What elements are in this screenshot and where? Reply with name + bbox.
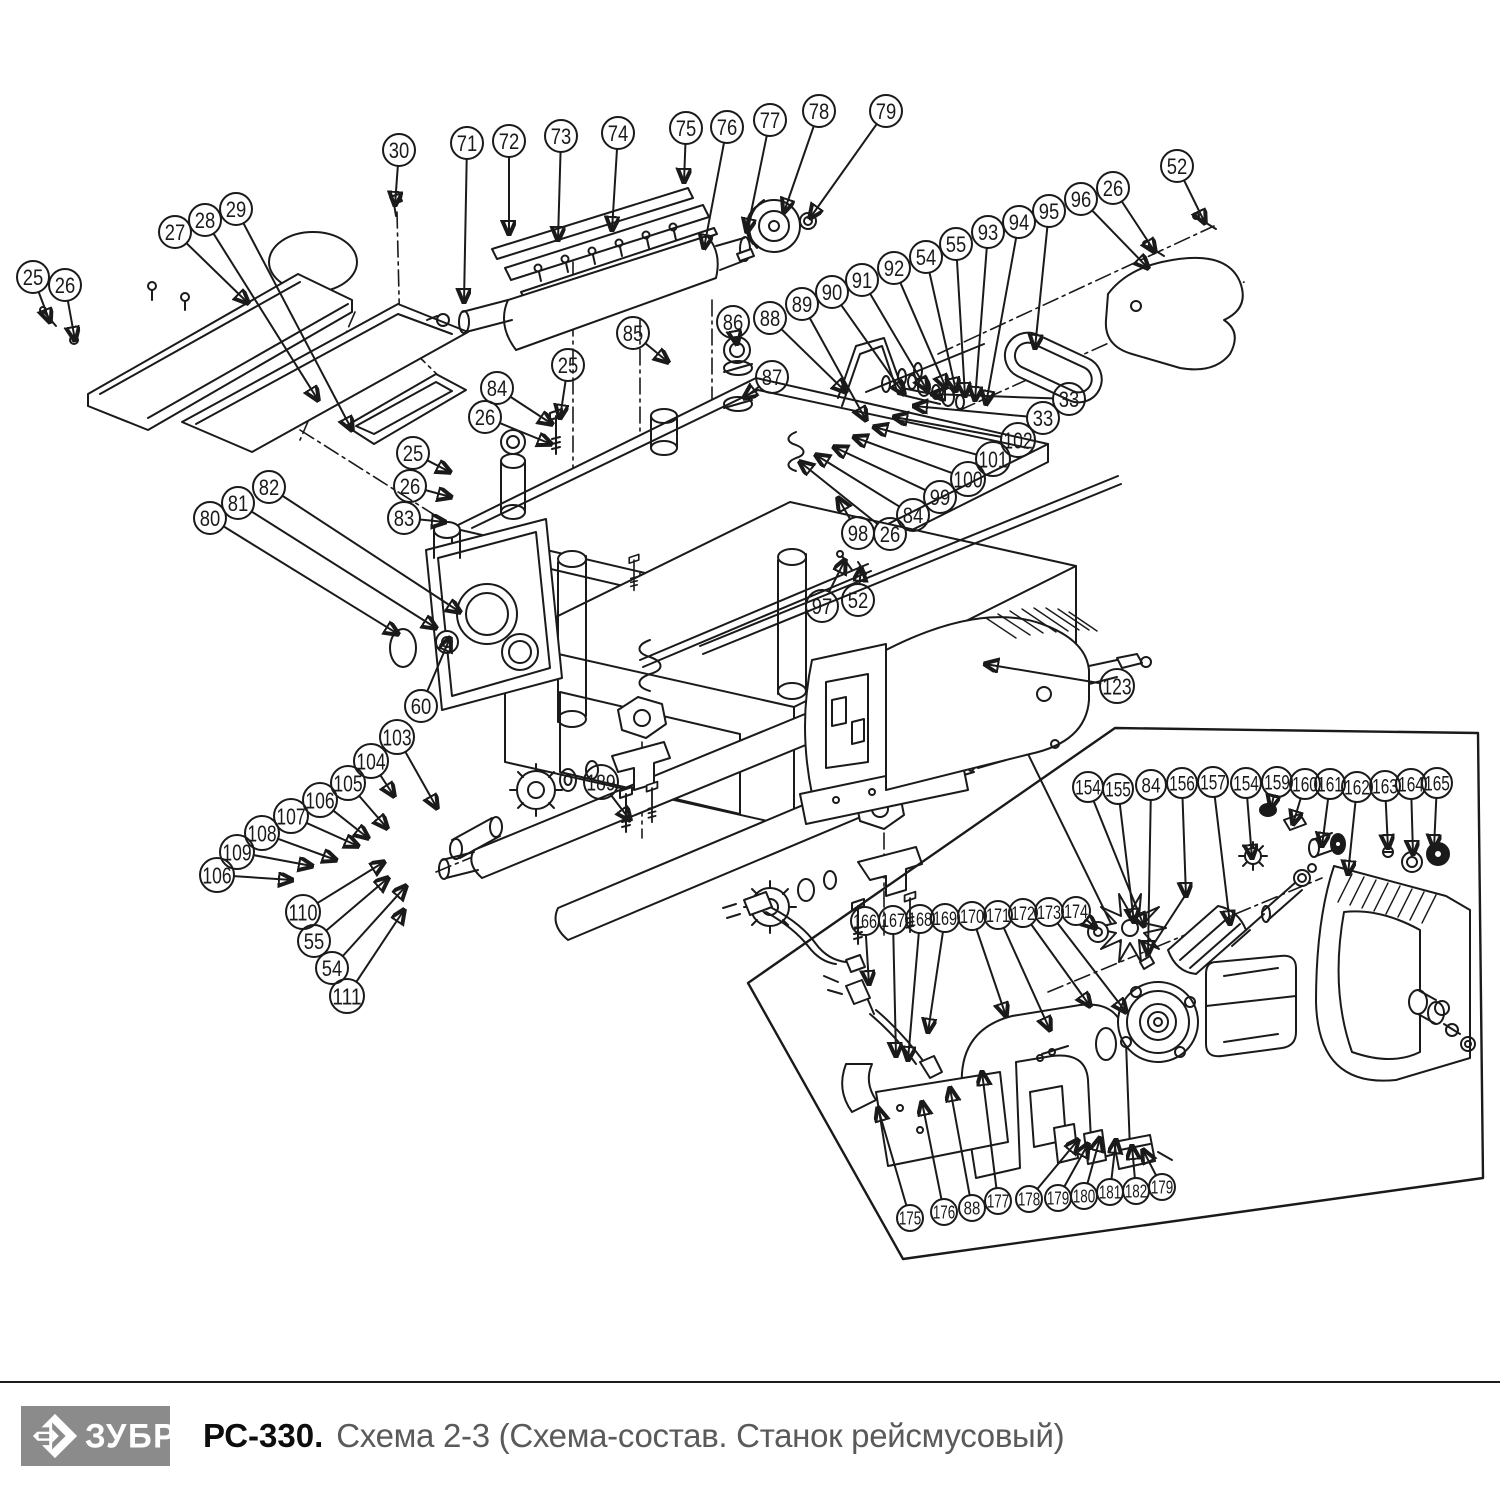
svg-text:103: 103: [382, 724, 411, 750]
callout-leader-165: [1434, 798, 1436, 848]
callout-leader-26: [68, 301, 75, 340]
callout-leader-162: [1348, 802, 1355, 874]
svg-text:106: 106: [305, 787, 334, 813]
svg-text:85: 85: [623, 321, 643, 346]
svg-text:55: 55: [304, 929, 324, 954]
callout-110: 110: [286, 862, 384, 929]
svg-text:25: 25: [23, 265, 43, 290]
exploded-parts-diagram: 2526272829307172737475767778798586878425…: [0, 0, 1500, 1381]
callout-leader-156: [1183, 798, 1186, 896]
svg-text:154: 154: [1075, 777, 1101, 800]
callout-leader-111: [356, 910, 404, 982]
svg-text:89: 89: [792, 292, 812, 317]
callout-leader-75: [684, 144, 685, 182]
svg-text:33: 33: [1059, 387, 1079, 412]
callout-leader-169: [928, 932, 943, 1032]
svg-text:78: 78: [809, 99, 829, 124]
callout-leader-54: [929, 273, 956, 391]
zubr-logo: ЗУБР: [21, 1406, 170, 1466]
svg-text:175: 175: [899, 1208, 921, 1228]
callout-leader-109: [254, 855, 312, 866]
model-number: РС-330.: [203, 1417, 323, 1455]
svg-text:82: 82: [259, 475, 279, 500]
svg-text:80: 80: [200, 506, 220, 531]
svg-text:77: 77: [760, 108, 780, 133]
callout-leader-93: [975, 248, 987, 400]
svg-text:179: 179: [1151, 1177, 1173, 1197]
callout-leader-104: [380, 775, 394, 796]
svg-text:25: 25: [403, 441, 423, 466]
svg-text:169: 169: [933, 909, 957, 930]
svg-text:171: 171: [986, 906, 1010, 927]
svg-text:189: 189: [586, 769, 615, 795]
svg-text:88: 88: [964, 1198, 981, 1218]
svg-text:86: 86: [723, 310, 743, 335]
svg-text:160: 160: [1292, 774, 1318, 797]
callout-75: 75: [670, 112, 702, 182]
callout-leader-84: [510, 397, 552, 424]
callout-179: 179: [1143, 1150, 1175, 1200]
callout-leader-33: [914, 406, 1027, 417]
svg-text:163: 163: [1372, 776, 1398, 799]
svg-text:166: 166: [853, 912, 877, 933]
svg-text:100: 100: [953, 466, 982, 492]
svg-text:87: 87: [762, 365, 782, 390]
callout-26: 26: [1097, 172, 1155, 252]
svg-text:182: 182: [1125, 1181, 1147, 1201]
svg-text:30: 30: [389, 138, 409, 163]
callout-leader-92: [900, 283, 946, 388]
callout-93: 93: [972, 216, 1004, 400]
callout-leader-161: [1322, 799, 1328, 846]
svg-text:101: 101: [978, 446, 1007, 472]
svg-text:25: 25: [558, 353, 578, 378]
callout-leader-55: [957, 260, 965, 396]
svg-text:95: 95: [1039, 199, 1059, 224]
svg-text:79: 79: [876, 99, 896, 124]
svg-text:156: 156: [1169, 773, 1195, 796]
callout-25: 25: [397, 437, 450, 472]
dust-cover-assembly: [40, 232, 468, 452]
svg-text:97: 97: [812, 594, 832, 619]
callout-25: 25: [552, 349, 584, 418]
callout-71: 71: [451, 127, 483, 302]
callout-156: 156: [1167, 768, 1197, 896]
power-cord: [723, 892, 865, 972]
zubr-logo-icon: [30, 1411, 80, 1461]
svg-text:96: 96: [1071, 187, 1091, 212]
svg-text:174: 174: [1064, 902, 1088, 923]
svg-text:73: 73: [551, 124, 571, 149]
callout-85: 85: [617, 317, 668, 362]
callout-26: 26: [49, 269, 81, 340]
callout-leader-71: [464, 159, 467, 302]
zubr-logo-text: ЗУБР: [85, 1416, 177, 1456]
svg-text:26: 26: [880, 522, 900, 547]
callout-leader-95: [1035, 227, 1047, 348]
svg-text:111: 111: [332, 983, 361, 1009]
callout-166: 166: [851, 907, 879, 984]
callout-leader-25: [39, 292, 50, 322]
svg-text:181: 181: [1099, 1182, 1121, 1202]
svg-text:94: 94: [1009, 210, 1029, 235]
callout-leader-170: [977, 929, 1006, 1016]
svg-text:84: 84: [903, 503, 923, 528]
callout-52: 52: [1161, 150, 1205, 223]
svg-text:29: 29: [226, 197, 246, 222]
callout-165: 165: [1422, 768, 1452, 848]
callout-leader-26: [1122, 201, 1155, 252]
svg-text:173: 173: [1037, 903, 1061, 924]
callout-leader-157: [1215, 797, 1230, 924]
svg-text:26: 26: [55, 273, 75, 298]
svg-text:99: 99: [930, 485, 950, 510]
svg-text:26: 26: [400, 474, 420, 499]
svg-text:71: 71: [457, 131, 477, 156]
svg-text:92: 92: [884, 256, 904, 281]
footer: ЗУБР РС-330. Схема 2-3 (Схема-состав. Ст…: [0, 1381, 1500, 1500]
svg-text:107: 107: [276, 803, 305, 829]
callout-leader-55: [326, 878, 388, 931]
callout-82: 82: [253, 471, 460, 612]
svg-text:93: 93: [978, 220, 998, 245]
callout-leader-96: [1092, 210, 1148, 268]
callout-80: 80: [194, 502, 398, 634]
figure-caption: РС-330. Схема 2-3 (Схема-состав. Станок …: [203, 1406, 1064, 1466]
svg-text:75: 75: [676, 116, 696, 141]
parts-diagram-page: 2526272829307172737475767778798586878425…: [0, 0, 1500, 1500]
svg-text:162: 162: [1344, 777, 1370, 800]
callout-leader-106: [333, 811, 368, 838]
svg-text:76: 76: [717, 115, 737, 140]
callout-leader-107: [307, 823, 358, 846]
svg-text:161: 161: [1317, 774, 1343, 797]
svg-text:157: 157: [1200, 772, 1226, 795]
svg-text:88: 88: [760, 306, 780, 331]
callout-leader-80: [224, 526, 398, 634]
callout-73: 73: [545, 120, 577, 240]
svg-text:165: 165: [1424, 773, 1450, 796]
svg-text:33: 33: [1033, 406, 1053, 431]
callout-leader-78: [784, 126, 814, 212]
svg-text:170: 170: [960, 907, 984, 928]
svg-text:90: 90: [822, 280, 842, 305]
svg-text:164: 164: [1398, 774, 1424, 797]
callout-168: 168: [906, 905, 934, 1060]
callout-159: 159: [1262, 767, 1292, 808]
callout-leader-103: [405, 752, 437, 808]
svg-text:72: 72: [499, 129, 519, 154]
callout-leader-172: [1031, 924, 1090, 1006]
callout-leader-88: [781, 329, 846, 392]
callout-leader-26: [425, 490, 451, 497]
svg-text:28: 28: [195, 208, 215, 233]
svg-text:26: 26: [475, 405, 495, 430]
svg-text:176: 176: [933, 1202, 955, 1222]
callout-162: 162: [1342, 772, 1372, 874]
callout-155: 155: [1103, 774, 1134, 922]
svg-text:167: 167: [881, 911, 905, 932]
svg-text:83: 83: [394, 506, 414, 531]
svg-text:52: 52: [848, 588, 868, 613]
callout-leader-168: [908, 933, 919, 1060]
svg-text:55: 55: [946, 232, 966, 257]
svg-text:178: 178: [1018, 1189, 1040, 1209]
svg-text:179: 179: [1047, 1188, 1069, 1208]
svg-text:54: 54: [322, 956, 342, 981]
svg-text:54: 54: [916, 245, 936, 270]
callout-leader-25: [427, 460, 450, 472]
callout-26: 26: [394, 470, 451, 502]
svg-text:155: 155: [1105, 779, 1131, 802]
svg-text:154: 154: [1233, 773, 1259, 796]
callout-154: 154: [1231, 768, 1261, 858]
callout-leader-108: [278, 839, 336, 860]
svg-text:106: 106: [202, 862, 231, 888]
svg-text:26: 26: [1103, 176, 1123, 201]
svg-text:60: 60: [411, 694, 431, 719]
callout-95: 95: [1033, 195, 1065, 348]
svg-text:123: 123: [1102, 673, 1131, 699]
callout-leader-110: [317, 862, 384, 903]
callout-54: 54: [910, 241, 956, 391]
callout-55: 55: [940, 228, 972, 396]
callout-174: 174: [1062, 897, 1096, 928]
svg-text:177: 177: [987, 1191, 1009, 1211]
caption-subtitle: Схема 2-3 (Схема-состав. Станок рейсмусо…: [336, 1417, 1064, 1455]
svg-text:52: 52: [1167, 154, 1187, 179]
callout-leader-164: [1411, 799, 1413, 854]
svg-text:172: 172: [1011, 904, 1035, 925]
svg-text:84: 84: [1141, 775, 1160, 798]
callout-leader-105: [359, 796, 387, 828]
callout-leader-52: [1184, 180, 1205, 223]
callout-leader-163: [1386, 801, 1388, 848]
callout-76: 76: [704, 111, 743, 248]
svg-text:168: 168: [908, 910, 932, 931]
footer-divider: [0, 1381, 1500, 1383]
callout-167: 167: [879, 906, 907, 1056]
svg-text:81: 81: [228, 491, 248, 516]
svg-text:98: 98: [848, 521, 868, 546]
callout-leader-166: [866, 935, 869, 984]
callout-leader-94: [986, 238, 1016, 404]
callout-157: 157: [1198, 767, 1230, 924]
svg-text:159: 159: [1264, 772, 1290, 795]
callout-72: 72: [493, 125, 525, 234]
svg-text:91: 91: [852, 268, 872, 293]
svg-text:110: 110: [288, 899, 317, 925]
svg-text:27: 27: [165, 220, 185, 245]
callout-169: 169: [928, 904, 959, 1032]
svg-text:180: 180: [1073, 1186, 1095, 1206]
svg-text:74: 74: [608, 121, 628, 146]
callout-leader-106: [234, 876, 292, 880]
callout-leader-79: [810, 124, 877, 218]
svg-text:105: 105: [333, 770, 362, 796]
callout-leader-85: [645, 343, 668, 362]
svg-text:84: 84: [487, 376, 507, 401]
